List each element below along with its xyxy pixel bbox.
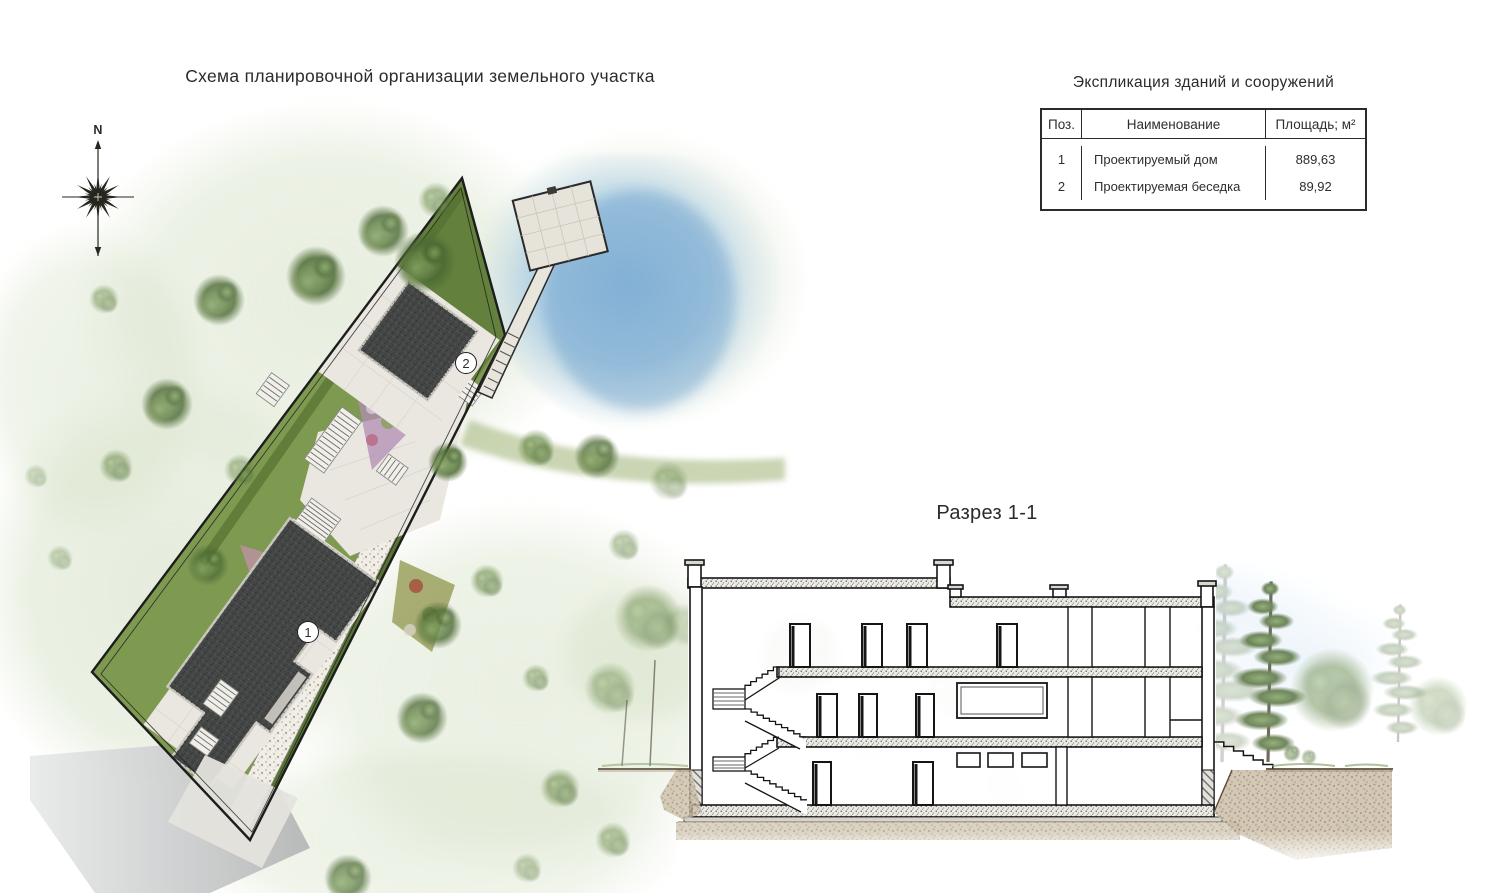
col-header-name: Наименование <box>1082 110 1266 139</box>
legend-table: Поз. Наименование Площадь; м² 1 Проектир… <box>1040 108 1367 211</box>
section-drawing <box>555 556 1468 872</box>
floor-slab-2 <box>777 667 1202 677</box>
compass-north-label: N <box>89 123 107 137</box>
foundation-slab <box>692 805 1214 817</box>
floor-slab-1 <box>777 737 1202 747</box>
row-pos: 2 <box>1042 173 1082 200</box>
plan-marker-house-label: 1 <box>304 625 311 640</box>
row-pos: 1 <box>1042 146 1082 173</box>
row-area: 89,92 <box>1266 173 1365 200</box>
legend-table-body: 1 Проектируемый дом 889,63 2 Проектируем… <box>1042 139 1365 209</box>
middle-floor-window <box>957 683 1047 718</box>
row-name: Проектируемая беседка <box>1082 173 1266 200</box>
water-area <box>460 154 785 483</box>
row-name: Проектируемый дом <box>1082 146 1266 173</box>
table-row: 1 Проектируемый дом 889,63 <box>1042 146 1365 173</box>
plan-marker-gazebo: 2 <box>455 352 477 374</box>
middle-floor-doors <box>817 694 934 737</box>
legend-title: Экспликация зданий и сооружений <box>1040 74 1367 92</box>
section-building <box>678 556 1273 822</box>
row-area: 889,63 <box>1266 146 1365 173</box>
col-header-area: Площадь; м² <box>1266 110 1365 139</box>
plan-marker-house: 1 <box>297 621 319 643</box>
upper-roof-slab <box>688 578 950 588</box>
lower-roof-slab <box>950 597 1214 607</box>
plan-marker-gazebo-label: 2 <box>462 356 469 371</box>
legend-table-header: Поз. Наименование Площадь; м² <box>1042 110 1365 139</box>
basement-windows <box>957 753 1047 767</box>
section-title: Разрез 1-1 <box>897 502 1077 525</box>
table-row: 2 Проектируемая беседка 89,92 <box>1042 173 1365 200</box>
drawing-sheet: Схема планировочной организации земельно… <box>0 0 1500 893</box>
site-plan-title: Схема планировочной организации земельно… <box>155 66 685 87</box>
col-header-pos: Поз. <box>1042 110 1082 139</box>
left-parapet <box>688 564 701 587</box>
